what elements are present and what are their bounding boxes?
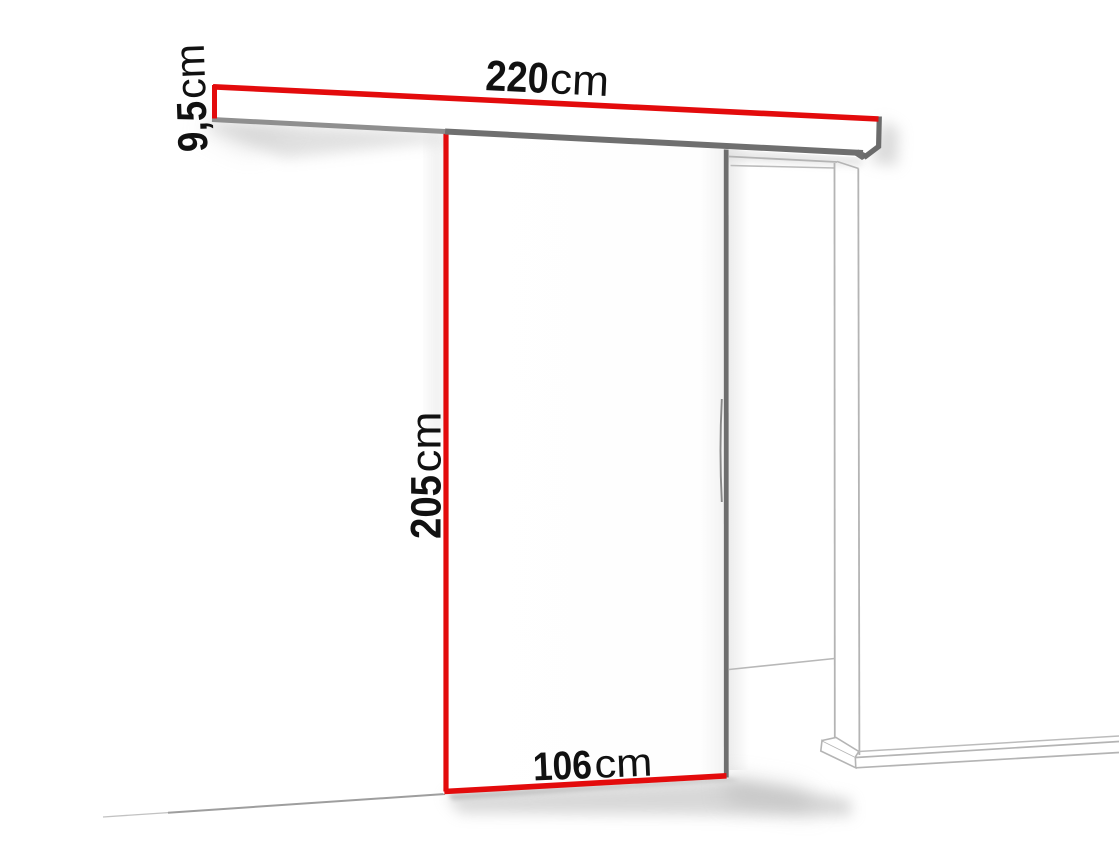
svg-text:106: 106: [532, 743, 593, 789]
svg-text:cm: cm: [166, 43, 215, 100]
svg-text:220: 220: [485, 52, 550, 103]
svg-text:cm: cm: [403, 412, 451, 473]
svg-text:205: 205: [403, 475, 451, 539]
svg-text:cm: cm: [593, 741, 653, 787]
svg-text:9,5: 9,5: [168, 100, 217, 153]
svg-text:cm: cm: [549, 55, 610, 106]
